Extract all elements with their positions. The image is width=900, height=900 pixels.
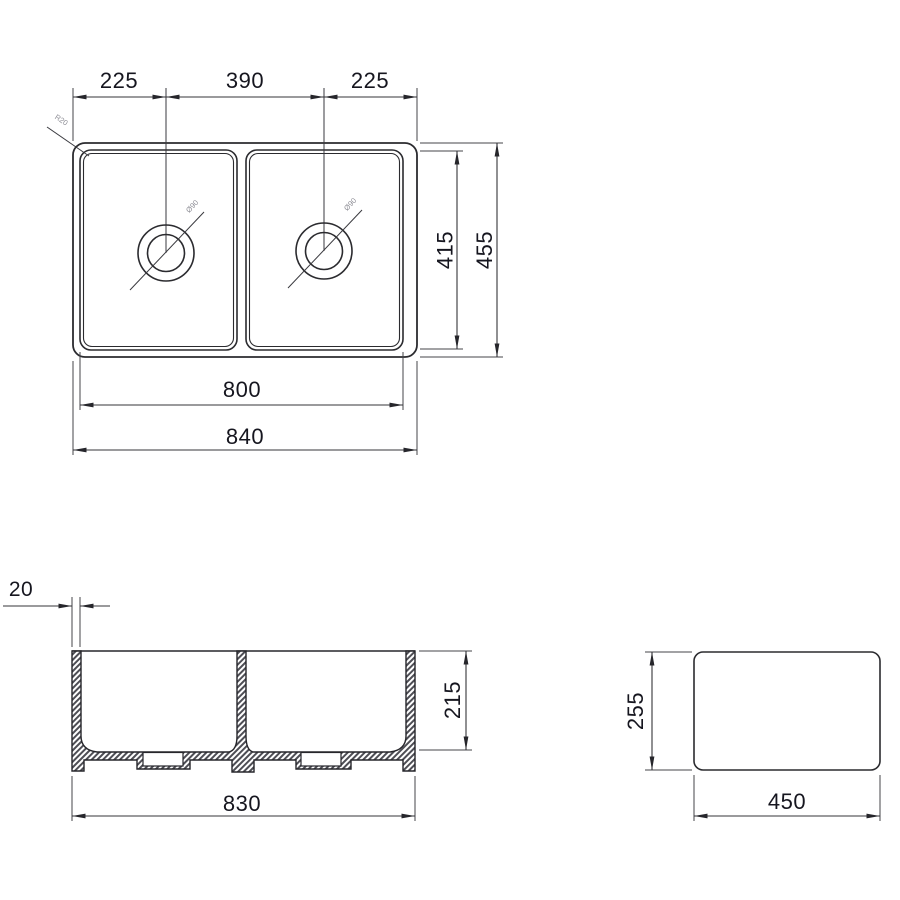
sink-dimension-drawing-page: Ø90 Ø90 R20 225 390 225 415 [0, 0, 900, 900]
sink-outline-side [694, 652, 880, 770]
section-body-hatched [72, 651, 415, 772]
dimension-215: 215 [419, 651, 472, 750]
left-bowl-edge [80, 150, 237, 350]
dimension-20: 20 [3, 578, 110, 647]
dimension-255: 255 [623, 652, 692, 770]
dimension-value-215: 215 [440, 681, 465, 719]
sink-outline-top [73, 143, 417, 357]
right-drain-diameter-leader [288, 210, 362, 288]
dimension-value-450: 450 [768, 789, 806, 814]
dimension-840: 840 [73, 361, 417, 455]
sink-dimension-drawing: Ø90 Ø90 R20 225 390 225 415 [0, 0, 900, 900]
drain-left: Ø90 [130, 88, 204, 290]
left-bowl-inner-edge [84, 154, 234, 347]
dimension-415: 415 [420, 151, 463, 349]
corner-radius-label: R20 [53, 112, 69, 127]
dimension-450: 450 [694, 775, 880, 821]
left-drain-diameter-leader [130, 212, 204, 290]
corner-radius-callout: R20 [47, 112, 89, 156]
dimension-800: 800 [80, 352, 403, 410]
front-section-view: 20 215 830 [3, 578, 472, 821]
drain-recess-left [143, 753, 183, 767]
top-view: Ø90 Ø90 R20 225 390 225 415 [47, 68, 503, 455]
left-drain-diameter-label: Ø90 [184, 198, 200, 215]
dimension-value-255: 255 [623, 692, 648, 730]
dimension-value-455: 455 [472, 231, 497, 269]
drain-right: Ø90 [288, 88, 362, 288]
sink-outer-rim [73, 143, 417, 357]
dimension-830: 830 [72, 776, 415, 821]
drain-recess-right [301, 753, 341, 767]
corner-radius-leader [47, 127, 89, 156]
dimension-value-20: 20 [9, 578, 33, 601]
right-drain-diameter-label: Ø90 [342, 196, 358, 213]
dimension-value-225-left: 225 [100, 68, 138, 93]
dimension-value-390: 390 [226, 68, 264, 93]
side-view: 255 450 [623, 652, 880, 821]
dimension-value-800: 800 [223, 377, 261, 402]
dimension-value-415: 415 [433, 231, 458, 269]
dimension-value-225-right: 225 [351, 68, 389, 93]
dimension-value-830: 830 [223, 791, 261, 816]
dimension-top-widths: 225 390 225 [73, 68, 417, 141]
dimension-value-840: 840 [226, 424, 264, 449]
